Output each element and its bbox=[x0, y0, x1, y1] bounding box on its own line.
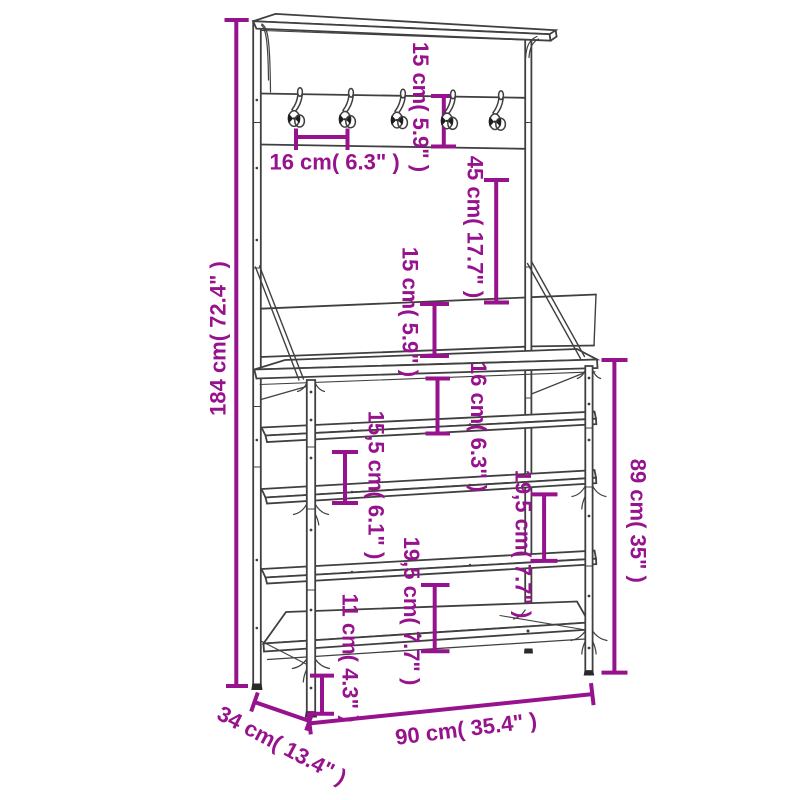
svg-text:184 cm( 72.4" ): 184 cm( 72.4" ) bbox=[205, 261, 230, 416]
svg-text:15 cm( 5.9" ): 15 cm( 5.9" ) bbox=[398, 247, 423, 377]
svg-text:15,5 cm( 6.1" ): 15,5 cm( 6.1" ) bbox=[363, 411, 388, 560]
svg-text:45 cm( 17.7" ): 45 cm( 17.7" ) bbox=[463, 156, 488, 299]
svg-text:19,5 cm( 7.7" ): 19,5 cm( 7.7" ) bbox=[399, 537, 424, 686]
svg-text:16 cm( 6.3" ): 16 cm( 6.3" ) bbox=[466, 362, 491, 492]
svg-text:15 cm( 5.9" ): 15 cm( 5.9" ) bbox=[408, 42, 433, 172]
svg-text:89 cm( 35" ): 89 cm( 35" ) bbox=[625, 459, 650, 583]
svg-text:16 cm( 6.3" ): 16 cm( 6.3" ) bbox=[269, 150, 399, 175]
svg-text:11 cm( 4.3" ): 11 cm( 4.3" ) bbox=[338, 593, 363, 722]
svg-text:19,5 cm( 7.7" ): 19,5 cm( 7.7" ) bbox=[510, 470, 535, 619]
